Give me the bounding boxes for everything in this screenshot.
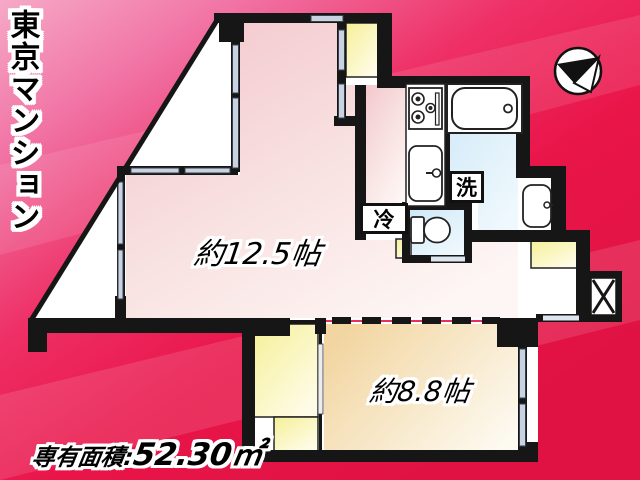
area-caption-prefix: 専有面積: <box>30 445 135 471</box>
washing-machine-space-tag: 洗 <box>449 171 484 203</box>
living-room-size-label: 約12.5帖 <box>155 229 361 273</box>
refrigerator-space-label: 冷 <box>374 204 395 234</box>
stove-icon <box>409 88 442 129</box>
window <box>118 250 123 299</box>
closet <box>254 324 318 417</box>
toilet-icon <box>411 217 450 243</box>
closet <box>274 417 318 451</box>
window <box>118 182 123 244</box>
window <box>339 84 345 118</box>
kitchen-sink-icon <box>409 146 442 201</box>
property-flyer: 東京マンション 約12.5帖 約8.8帖 冷 洗 専有面積:52.30㎡ <box>0 0 640 480</box>
pipe-space-icon <box>585 271 622 322</box>
window <box>233 98 239 168</box>
bedroom-size-label: 約8.8帖 <box>317 370 523 410</box>
window <box>185 168 230 173</box>
window <box>131 168 179 173</box>
window <box>339 30 345 70</box>
refrigerator-space-tag: 冷 <box>360 203 408 234</box>
exclusive-area-caption: 専有面積:52.30㎡ <box>29 429 266 474</box>
window <box>520 404 526 446</box>
washbasin-icon <box>523 185 553 227</box>
washing-machine-space-label: 洗 <box>456 172 477 202</box>
window <box>311 16 343 22</box>
compass-icon <box>555 48 601 94</box>
window <box>233 45 239 93</box>
kitchen-floor <box>360 85 408 206</box>
building-title: 東京マンション <box>6 9 38 233</box>
closet <box>531 241 577 268</box>
bathtub-icon <box>447 84 522 133</box>
area-caption-value: 52.30㎡ <box>131 437 266 473</box>
closet <box>346 23 379 77</box>
